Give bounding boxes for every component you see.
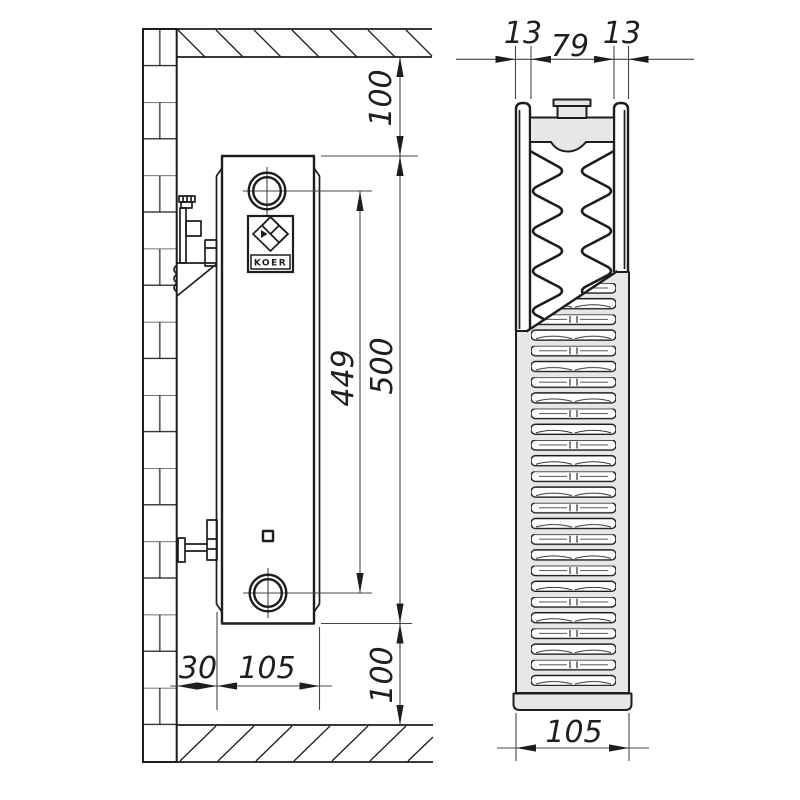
dim-front-panel: 13 xyxy=(504,16,542,51)
koer-logo: KOER xyxy=(248,216,293,272)
dim-side-depth: 105 xyxy=(238,651,295,686)
top-header xyxy=(530,118,614,152)
air-vent-plug xyxy=(554,100,591,119)
radiator-technical-drawing: KOER 100 500 449 100 xyxy=(0,0,800,800)
front-panel xyxy=(516,103,530,331)
brick-wall xyxy=(143,29,177,762)
dim-bottom-clearance: 100 xyxy=(365,646,400,703)
dim-connection-spacing: 449 xyxy=(326,349,361,406)
dim-wall-clearance: 30 xyxy=(179,651,217,686)
ceiling-hatch xyxy=(143,29,432,57)
dim-top-clearance: 100 xyxy=(364,69,399,126)
grille-slots xyxy=(531,280,616,686)
rear-panel xyxy=(614,103,628,272)
base-cap xyxy=(514,694,632,711)
brand-label: KOER xyxy=(254,259,287,269)
dim-height: 500 xyxy=(365,337,400,394)
drawing-canvas: KOER 100 500 449 100 xyxy=(0,0,800,800)
radiator-section-view xyxy=(514,46,632,710)
drain-plug-square xyxy=(263,531,273,541)
wall-bracket-top xyxy=(174,196,217,296)
dim-convector: 79 xyxy=(551,29,589,64)
floor-hatch xyxy=(143,725,433,762)
dim-rear-panel: 13 xyxy=(603,16,641,51)
wall-bracket-bottom xyxy=(178,520,217,562)
dim-total-depth: 105 xyxy=(545,715,602,750)
